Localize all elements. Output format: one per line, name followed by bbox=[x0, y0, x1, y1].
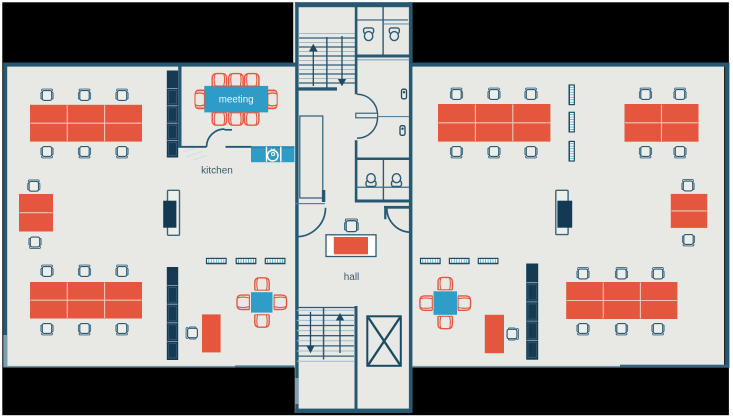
svg-text:kitchen: kitchen bbox=[201, 166, 233, 177]
svg-text:hall: hall bbox=[344, 272, 360, 283]
svg-text:meeting: meeting bbox=[219, 95, 254, 106]
